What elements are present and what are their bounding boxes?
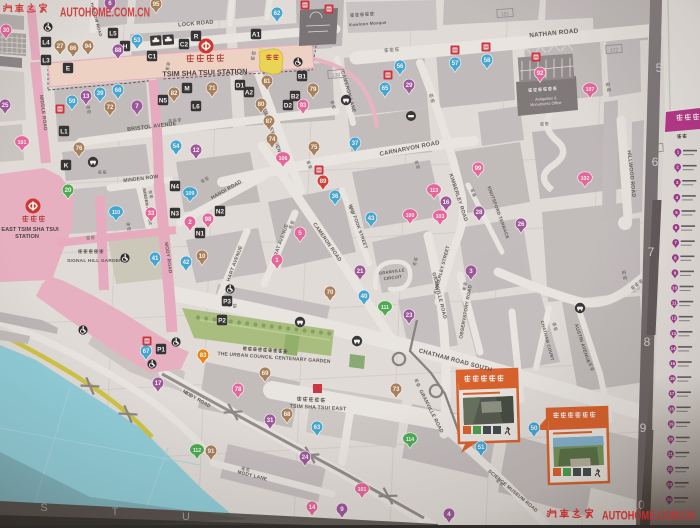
svg-text:AUTOHOME.COM.CN: AUTOHOME.COM.CN: [60, 6, 150, 20]
svg-text:AUTOHOME.COM.CN: AUTOHOME.COM.CN: [602, 509, 695, 523]
